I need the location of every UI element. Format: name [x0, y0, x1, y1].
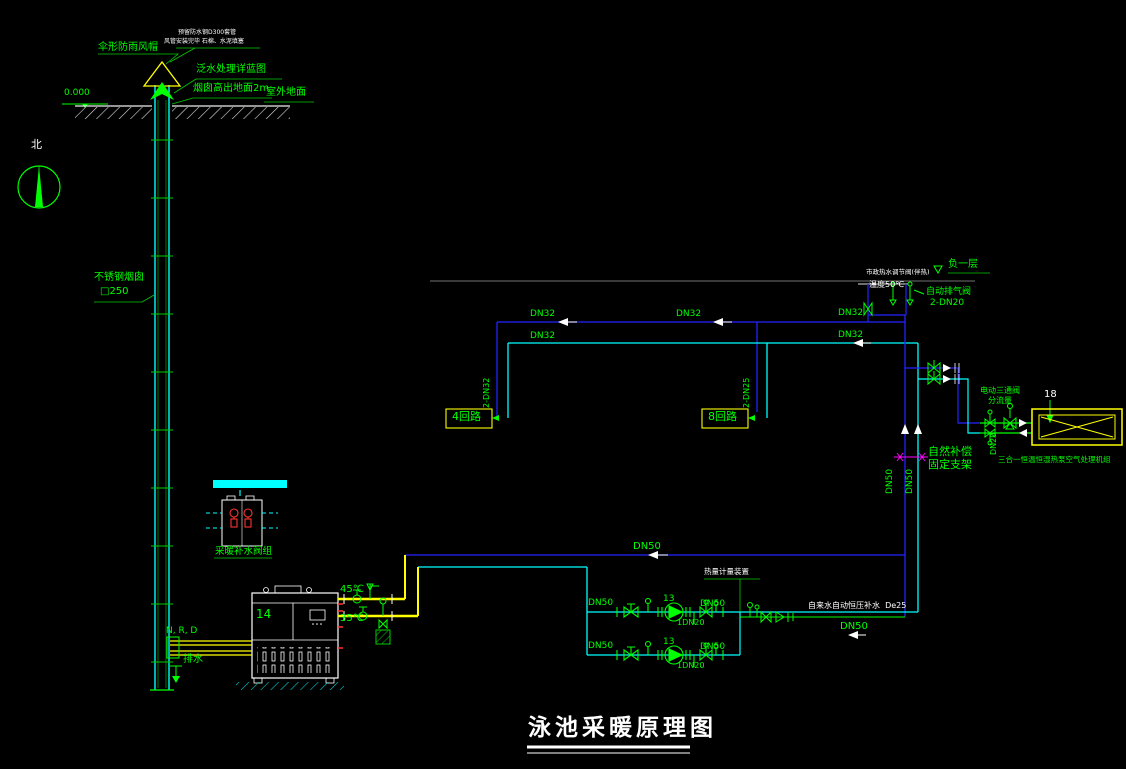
drawing-title: 泳池采暖原理图	[528, 716, 717, 741]
stack-material-label: 不锈钢烟囱	[94, 272, 144, 283]
boiler-display	[310, 610, 325, 620]
tapwater-note: 自来水自动恒压补水 De25	[808, 602, 906, 611]
title-rule	[527, 747, 690, 753]
outdoor-ground-label: 室外地面	[266, 87, 306, 98]
dn50-pump-label: DN50	[700, 643, 725, 653]
dn50-pump-label: DN50	[588, 599, 613, 609]
boiler	[236, 586, 344, 690]
pump-group	[587, 579, 918, 667]
cad-canvas: 伞形防雨风帽 预留防水钢D300套管 风管安装完毕 石棉、水泥填塞 泛水处理详蓝…	[0, 0, 1126, 769]
basement-label: 负一层	[948, 259, 978, 270]
makeup-control-panel	[206, 480, 287, 546]
meter-note: 热量计量装置	[704, 568, 749, 576]
drain-label: 排水	[183, 654, 203, 665]
north-label: 北	[31, 139, 42, 151]
chimney	[144, 62, 180, 690]
diverting-label: 分流量	[988, 397, 1012, 406]
ground-line	[62, 104, 290, 119]
dn32-label: DN32	[838, 331, 863, 341]
pump-drain-label: 1DN20	[677, 619, 704, 628]
level-mark-icon	[934, 266, 942, 273]
temp50-label: 温度50℃	[869, 281, 904, 290]
loop4-label: 4回路	[452, 411, 481, 423]
dn50-pump-label: DN50	[700, 600, 725, 610]
dn20-label: DN20	[990, 433, 999, 455]
boiler-grill	[257, 647, 333, 673]
stack-height-note: 烟囱高出地面2m	[193, 83, 269, 94]
dn32-label: DN32	[530, 332, 555, 342]
flashing-note: 泛水处理详蓝图	[196, 64, 266, 75]
pump-number: 13	[663, 638, 674, 648]
ahu-circuit	[980, 400, 1122, 445]
nrd-label: N, R, D	[166, 627, 197, 637]
supply-temp-label: 45℃	[340, 584, 364, 595]
dn50-riser-label: DN50	[906, 469, 916, 494]
pump-drain-label: 1DN20	[677, 662, 704, 671]
level-zero-label: 0.000	[64, 89, 90, 99]
drain-icon	[172, 676, 180, 683]
dn50-riser-label: DN50	[886, 469, 896, 494]
return-temp-label: 35℃	[340, 613, 364, 624]
stack-size-label: □250	[100, 286, 129, 297]
loop4-size-label: 2-DN32	[483, 378, 492, 408]
heat-exchanger-coil	[1032, 409, 1122, 445]
loop8-size-label: 2-DN25	[743, 378, 752, 408]
sleeve-note: 预留防水钢D300套管	[178, 30, 236, 37]
loop-boxes	[446, 409, 748, 428]
hx-caption: 三合一恒温恒湿热泵空气处理机组	[998, 456, 1111, 464]
fixed-support-label: 固定支架	[928, 459, 972, 471]
valve-icon	[928, 360, 940, 384]
three-way-valve-label: 电动三通阀	[980, 387, 1020, 396]
makeup-pump-icon	[230, 509, 252, 527]
dn50-main-label: DN50	[633, 541, 661, 552]
north-arrow-icon	[18, 166, 60, 208]
fixed-support-icon	[894, 453, 928, 461]
dn32-label: DN32	[530, 310, 555, 320]
hx-number: 18	[1044, 389, 1057, 400]
natural-comp-label: 自然补偿	[928, 446, 972, 458]
fill-note: 风管安装完毕 石棉、水泥填塞	[164, 39, 244, 46]
dn32-label: DN32	[838, 309, 863, 319]
auto-vent-label: 自动排气阀	[926, 288, 971, 298]
rain-cap-label: 伞形防雨风帽	[98, 42, 158, 53]
loop8-label: 8回路	[708, 411, 737, 423]
pump-number: 13	[663, 595, 674, 605]
dn50-makeup-label: DN50	[840, 621, 868, 632]
makeup-valve-group-label: 采暖补水阀组	[215, 547, 272, 557]
auto-vent-size-label: 2-DN20	[930, 299, 964, 309]
schematic-linework	[0, 0, 1126, 769]
fuel-pipes	[167, 637, 252, 683]
municipal-note: 市政热水调节阀(伴热)	[866, 269, 930, 276]
boiler-foundation	[236, 682, 344, 690]
dn32-label: DN32	[676, 310, 701, 320]
boiler-number: 14	[256, 608, 271, 621]
flow-up-arrow-icon	[150, 82, 174, 100]
dn50-pump-label: DN50	[588, 642, 613, 652]
